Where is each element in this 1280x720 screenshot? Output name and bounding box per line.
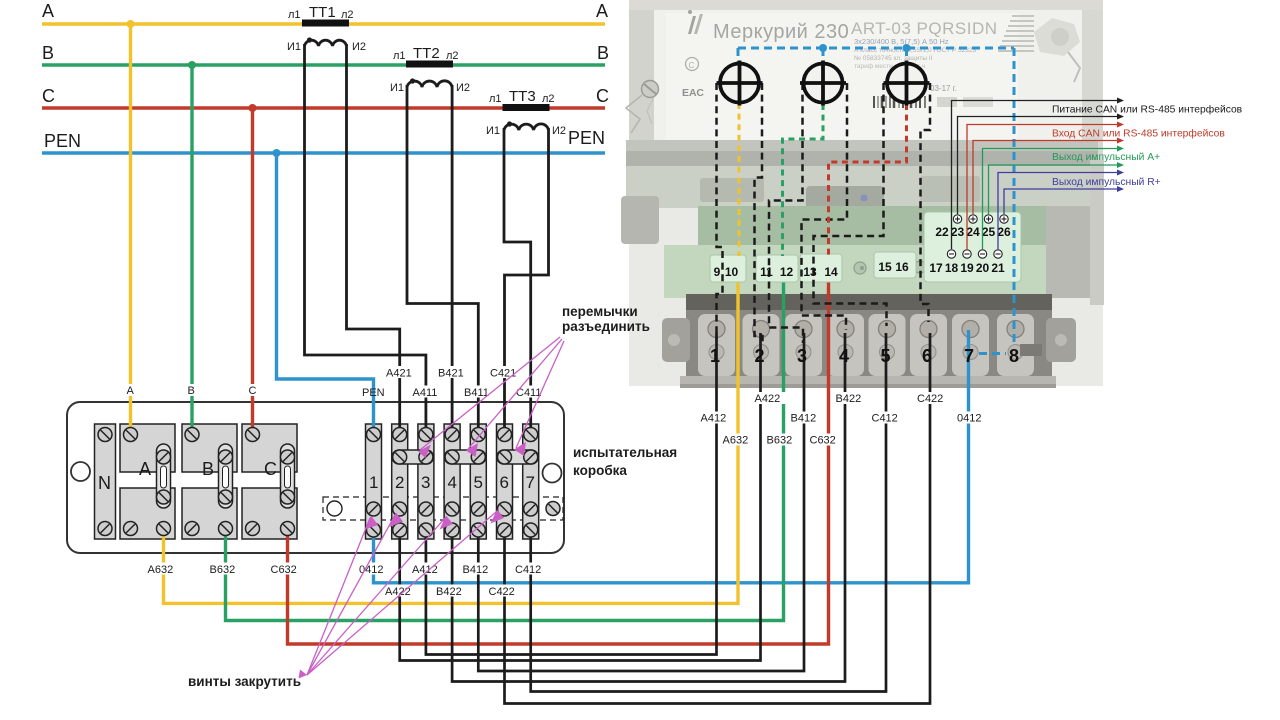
svg-text:C421: C421	[490, 368, 516, 380]
svg-text:И1: И1	[486, 125, 500, 137]
svg-text:6: 6	[922, 346, 932, 366]
svg-text:C: C	[249, 385, 257, 397]
svg-text:26: 26	[997, 225, 1011, 239]
svg-text:разъединить: разъединить	[562, 319, 650, 334]
svg-text:Меркурий 230: Меркурий 230	[713, 21, 849, 43]
svg-text:C: C	[264, 459, 277, 479]
svg-text:И2: И2	[552, 125, 566, 137]
svg-text:перемычки: перемычки	[562, 304, 638, 319]
svg-text:л1: л1	[288, 9, 301, 21]
svg-text:Вход CAN или RS-485 интерфейсо: Вход CAN или RS-485 интерфейсов	[1052, 128, 1225, 140]
svg-text:N: N	[98, 473, 111, 493]
svg-text:Выход импульсный R+: Выход импульсный R+	[1052, 177, 1161, 188]
svg-text:A412: A412	[701, 413, 727, 425]
svg-text:И2: И2	[456, 82, 470, 94]
svg-text:C: C	[689, 61, 695, 70]
svg-text:И1: И1	[390, 82, 404, 94]
svg-text:03-17 г.: 03-17 г.	[930, 84, 957, 93]
svg-text:2: 2	[395, 473, 404, 492]
svg-text:B412: B412	[463, 564, 489, 576]
svg-text:PEN: PEN	[44, 131, 81, 151]
svg-text:C412: C412	[872, 413, 898, 425]
svg-text:л2: л2	[341, 9, 354, 21]
svg-text:№ 05833745 кл. защиты II: № 05833745 кл. защиты II	[854, 55, 933, 62]
svg-text:3: 3	[797, 346, 807, 366]
svg-text:C: C	[42, 86, 55, 106]
svg-text:A: A	[42, 1, 54, 21]
svg-text:9: 9	[714, 265, 721, 279]
svg-text:6: 6	[500, 473, 509, 492]
svg-text:И2: И2	[352, 41, 366, 53]
svg-text:8: 8	[1009, 346, 1019, 366]
svg-text:A: A	[139, 459, 151, 479]
svg-text:PEN: PEN	[362, 387, 385, 399]
svg-text:B: B	[202, 459, 214, 479]
svg-text:C412: C412	[515, 564, 541, 576]
svg-text:B422: B422	[836, 393, 862, 405]
svg-text:5: 5	[880, 346, 890, 366]
svg-text:13: 13	[803, 265, 817, 279]
svg-text:ЕАС: ЕАС	[682, 87, 704, 99]
svg-text:10: 10	[725, 265, 739, 279]
svg-text:C632: C632	[810, 435, 836, 447]
svg-text:1: 1	[369, 473, 378, 492]
svg-text:A411: A411	[413, 387, 438, 399]
svg-text:И1: И1	[287, 41, 301, 53]
svg-text:22: 22	[935, 225, 949, 239]
svg-text:3х230/400 В, 5(7,5) А 50 Hz: 3х230/400 В, 5(7,5) А 50 Hz	[854, 37, 949, 46]
svg-text:C632: C632	[271, 564, 297, 576]
svg-text:11: 11	[760, 265, 773, 279]
svg-text:B422: B422	[436, 586, 462, 598]
svg-text:14: 14	[824, 265, 838, 279]
svg-text:винты закрутить: винты закрутить	[188, 674, 301, 689]
svg-text:25: 25	[982, 225, 996, 239]
svg-text:C: C	[596, 86, 609, 106]
svg-text:коробка: коробка	[573, 463, 627, 478]
svg-text:Питание CAN или RS-485 интерфе: Питание CAN или RS-485 интерфейсов	[1052, 104, 1243, 116]
svg-text:5: 5	[474, 473, 483, 492]
svg-text:испытательная: испытательная	[573, 445, 677, 460]
svg-text:3: 3	[421, 473, 430, 492]
svg-text:л2: л2	[446, 50, 459, 62]
svg-text:4: 4	[448, 473, 457, 492]
svg-text:A632: A632	[148, 564, 174, 576]
svg-text:A632: A632	[723, 435, 749, 447]
svg-text:A: A	[596, 1, 608, 21]
svg-text:20: 20	[976, 261, 990, 275]
svg-text:B: B	[188, 385, 195, 397]
svg-text:B632: B632	[210, 564, 236, 576]
svg-text:B412: B412	[791, 413, 817, 425]
svg-text:21: 21	[991, 261, 1005, 275]
svg-text:B: B	[597, 43, 609, 63]
svg-text:ART-03 PQRSIDN: ART-03 PQRSIDN	[851, 19, 998, 38]
svg-text:л1: л1	[393, 50, 406, 62]
svg-text:4: 4	[839, 346, 849, 366]
svg-text:7: 7	[964, 346, 974, 366]
svg-text:A: A	[127, 385, 135, 397]
svg-text:ТТ2: ТТ2	[413, 45, 440, 62]
svg-text:Выход импульсный А+: Выход импульсный А+	[1052, 152, 1160, 163]
svg-text:23: 23	[951, 225, 965, 239]
svg-text:2: 2	[754, 346, 764, 366]
svg-text:24: 24	[966, 225, 980, 239]
svg-text:B632: B632	[767, 435, 793, 447]
svg-text:ТТ1: ТТ1	[309, 4, 336, 21]
svg-text:ТТ3: ТТ3	[509, 88, 536, 105]
svg-text:PEN: PEN	[568, 128, 605, 148]
svg-text:л2: л2	[542, 93, 555, 105]
svg-text:18: 18	[945, 261, 959, 275]
svg-text:A421: A421	[386, 368, 412, 380]
svg-text:A422: A422	[755, 393, 781, 405]
svg-text:7: 7	[526, 473, 535, 492]
svg-text:0412: 0412	[957, 413, 981, 425]
svg-text:15: 15	[878, 260, 892, 274]
svg-text:12: 12	[780, 265, 794, 279]
svg-text:17: 17	[929, 261, 943, 275]
svg-text:B421: B421	[438, 368, 464, 380]
svg-text:1: 1	[710, 346, 720, 366]
svg-text:16: 16	[895, 260, 909, 274]
svg-text:19: 19	[960, 261, 974, 275]
svg-text:B: B	[42, 43, 54, 63]
svg-text:л1: л1	[489, 93, 502, 105]
svg-text:C422: C422	[489, 586, 515, 598]
svg-text:C422: C422	[917, 393, 943, 405]
